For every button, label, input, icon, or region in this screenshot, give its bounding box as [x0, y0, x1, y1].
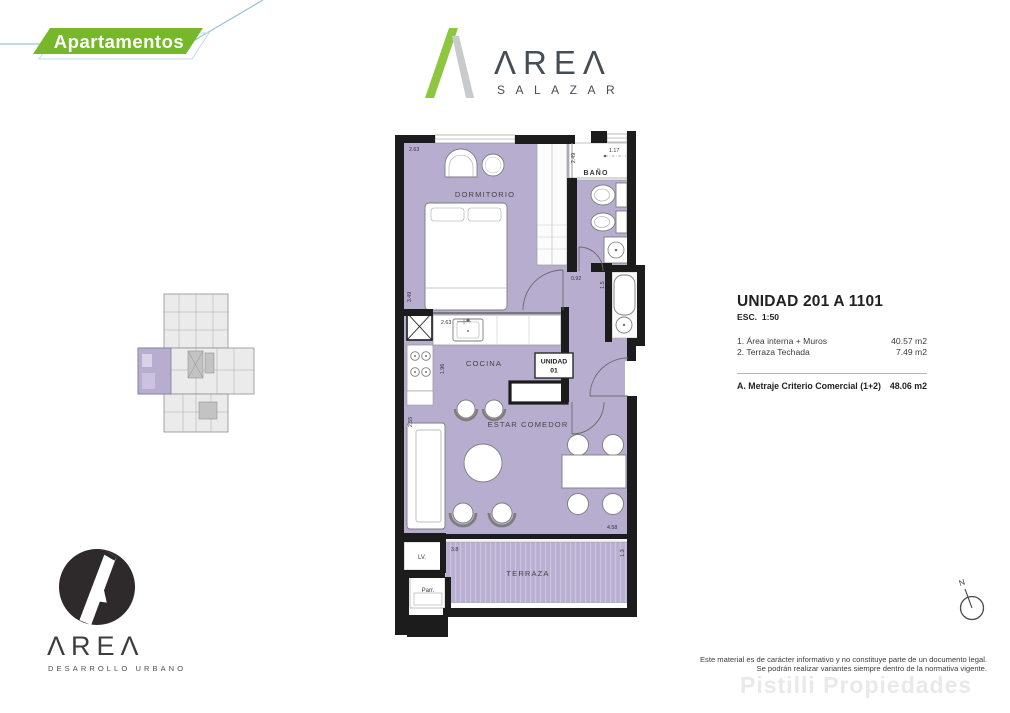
- dim-bath-top: 1.17: [609, 148, 619, 154]
- room-label-bath: BAÑO: [583, 168, 608, 177]
- kitchen-counter: [433, 315, 561, 345]
- dim-living-bottom: 4.58: [607, 525, 617, 531]
- room-label-terrace: TERRAZA: [506, 569, 549, 578]
- room-label-living: ESTAR COMEDOR: [488, 420, 569, 429]
- info-item-label: 2. Terraza Techada: [737, 347, 810, 358]
- info-item-value: 40.57 m2: [891, 336, 927, 347]
- toilet: [591, 183, 627, 207]
- north-compass: N: [945, 575, 997, 623]
- apartamentos-banner: Apartamentos: [0, 0, 280, 62]
- closet: [537, 143, 567, 265]
- brand-text: ΛREΛ SALAZAR: [494, 26, 625, 97]
- unit-number-box: UNIDAD 01: [535, 353, 573, 378]
- dim-bath-left: 2.49: [571, 153, 577, 163]
- shaft-box: [407, 313, 432, 340]
- banner-label: Apartamentos: [54, 31, 184, 52]
- developer-mark-icon: [58, 548, 136, 626]
- sofa: [407, 423, 445, 529]
- info-item-row: 1. Área interna + Muros 40.57 m2: [737, 336, 927, 347]
- brand-logo: ΛREΛ SALAZAR: [413, 26, 625, 102]
- room-label-kitchen: COCINA: [466, 359, 502, 368]
- unit-box-line2: 01: [550, 368, 558, 375]
- info-total-row: A. Metraje Criterio Comercial (1+2) 48.0…: [737, 381, 927, 391]
- kitchen-island: [510, 382, 567, 403]
- building-key-plan: [133, 290, 259, 438]
- info-total-value: 48.06 m2: [890, 381, 927, 391]
- watermark: Pistilli Propiedades: [740, 672, 972, 699]
- bidet: [591, 211, 627, 233]
- dim-bedroom-top: 2.63: [409, 147, 419, 153]
- info-items: 1. Área interna + Muros 40.57 m2 2. Terr…: [737, 336, 927, 358]
- info-title: UNIDAD 201 A 1101: [737, 293, 927, 311]
- stove: [407, 345, 433, 405]
- info-divider: [737, 373, 927, 374]
- dim-terrace-right: 1.3: [620, 549, 626, 556]
- room-label-laundry: LV.: [418, 555, 426, 561]
- developer-logo: ΛREΛ DESARROLLO URBANO: [45, 548, 215, 673]
- entry-opening: [625, 361, 637, 396]
- north-label: N: [958, 577, 966, 587]
- info-total-label: A. Metraje Criterio Comercial (1+2): [737, 381, 881, 391]
- disclaimer: Este material es de carácter informativo…: [567, 655, 987, 674]
- info-item-label: 1. Área interna + Muros: [737, 336, 827, 347]
- dim-kitchen-left: 1.96: [440, 364, 446, 374]
- info-item-value: 7.49 m2: [896, 347, 927, 358]
- unit-info-panel: UNIDAD 201 A 1101 ESC. 1:50 1. Área inte…: [737, 293, 927, 391]
- brand-mark-gray-bar: [452, 36, 474, 98]
- floorplan-sheet: { "badge": { "label": "Apartamentos", "g…: [0, 0, 1010, 713]
- dim-kitchen-top: 2.63: [441, 320, 451, 326]
- brand-mark-icon: [413, 26, 475, 98]
- developer-wordmark: ΛREΛ: [45, 633, 215, 660]
- info-scale: ESC. 1:50: [737, 312, 927, 322]
- info-item-row: 2. Terraza Techada 7.49 m2: [737, 347, 927, 358]
- brand-wordmark: ΛREΛ: [494, 46, 625, 79]
- dim-hall-door: 0.92: [571, 276, 581, 282]
- dim-terrace-left: 3.8: [451, 547, 458, 553]
- disclaimer-line1: Este material es de carácter informativo…: [567, 655, 987, 664]
- round-table: [464, 444, 502, 482]
- developer-subtitle: DESARROLLO URBANO: [45, 664, 215, 673]
- dim-hall-right: 1.5: [600, 281, 606, 288]
- room-label-bedroom: DORMITORIO: [455, 190, 515, 199]
- bed: [425, 203, 507, 310]
- floor-plan: UNIDAD 01 DORMITORIO BAÑO COCINA ESTAR C…: [395, 125, 650, 645]
- room-label-grill: Parr.: [422, 588, 435, 594]
- brand-name: SALAZAR: [494, 83, 625, 97]
- washbasin: [604, 237, 628, 263]
- unit-box-line1: UNIDAD: [541, 359, 568, 366]
- shower: [612, 272, 638, 338]
- dim-bedroom-left: 3.49: [407, 292, 413, 302]
- dim-living-left: 2.55: [408, 417, 414, 427]
- key-plan-highlight-unit: [138, 348, 171, 394]
